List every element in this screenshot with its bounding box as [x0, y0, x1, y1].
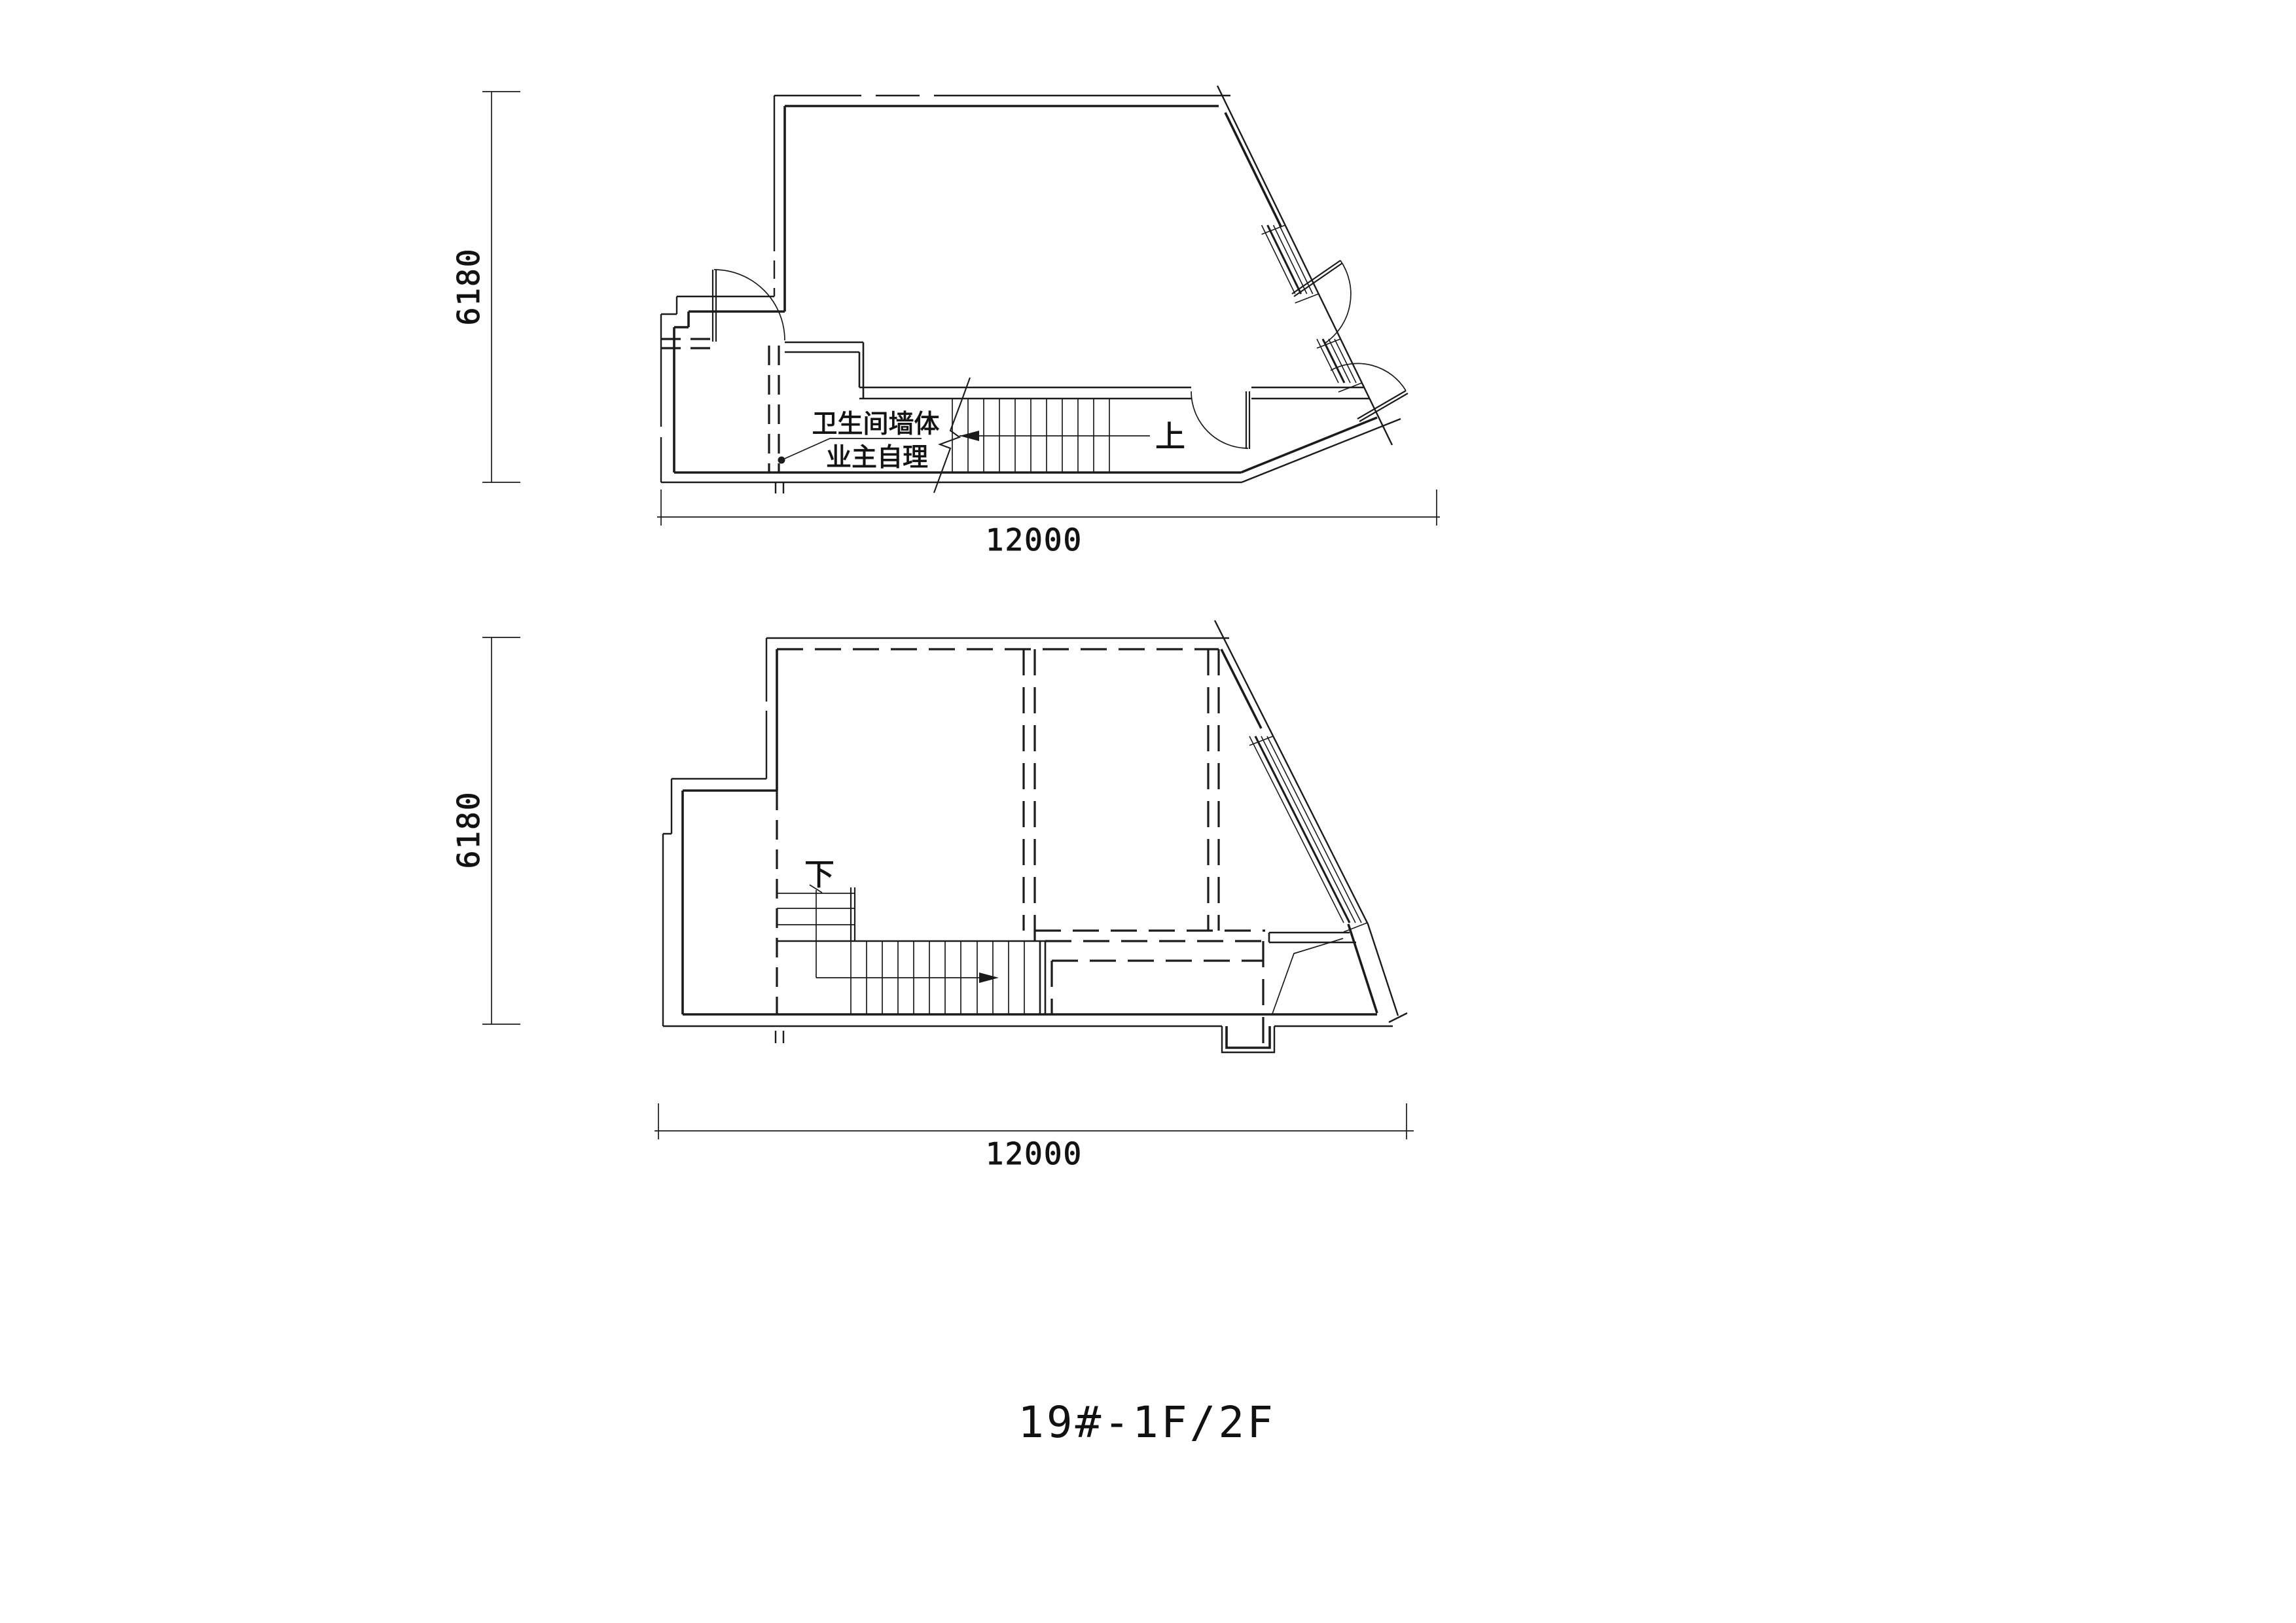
1f-entry-door [713, 270, 785, 342]
drawing-sheet: 卫生间墙体 业主自理 上 6180 12000 [0, 0, 2296, 1623]
1f-annotation-line2: 业主自理 [826, 443, 928, 473]
2f-dim-height-text: 6180 [451, 791, 486, 869]
1f-dimension-width [657, 490, 1440, 526]
1f-bathroom-dashed-walls [661, 339, 779, 473]
1f-dim-height-text: 6180 [451, 248, 486, 326]
1f-stair-door [1191, 391, 1249, 449]
2f-stair-arrow [979, 972, 999, 983]
2f-inner-walls [683, 649, 1377, 1048]
2f-dashed-partitions [1024, 649, 1265, 1048]
2f-dimension-width [655, 1103, 1414, 1139]
1f-stairs [952, 399, 1150, 473]
2f-dim-width-text: 12000 [986, 1136, 1083, 1171]
2f-stairs [777, 885, 1045, 1014]
1f-facade-door-lower [1331, 363, 1408, 421]
1f-dimension-height [482, 92, 520, 482]
2f-window [1249, 736, 1367, 932]
2f-outer-walls [663, 620, 1407, 1052]
floor-plan-2f: 下 6180 12000 [451, 620, 1414, 1171]
floor-plan-1f: 卫生间墙体 业主自理 上 6180 12000 [451, 86, 1440, 558]
2f-dimension-height [482, 637, 520, 1024]
2f-flue-lines [1272, 938, 1343, 1014]
1f-annotation-line1: 卫生间墙体 [812, 410, 939, 439]
1f-window-lower [1317, 339, 1362, 392]
1f-facade-door-upper [1292, 260, 1351, 343]
2f-se-wall-stub [1269, 933, 1356, 942]
2f-stair-direction-label: 下 [804, 857, 834, 892]
1f-dim-width-text: 12000 [986, 522, 1083, 558]
sheet-title: 19#-1F/2F [1018, 1397, 1276, 1448]
1f-stair-arrow [960, 431, 979, 441]
1f-partition-walls [785, 342, 1369, 399]
1f-stair-direction-label: 上 [1155, 419, 1185, 454]
